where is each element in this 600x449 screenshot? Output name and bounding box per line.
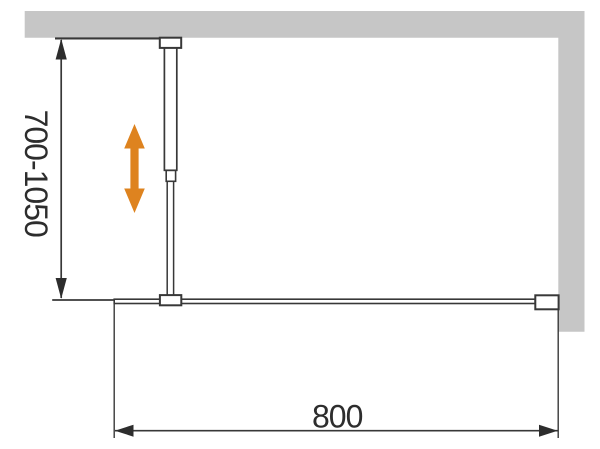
svg-text:800: 800 [312,399,363,435]
svg-text:700-1050: 700-1050 [18,110,54,237]
